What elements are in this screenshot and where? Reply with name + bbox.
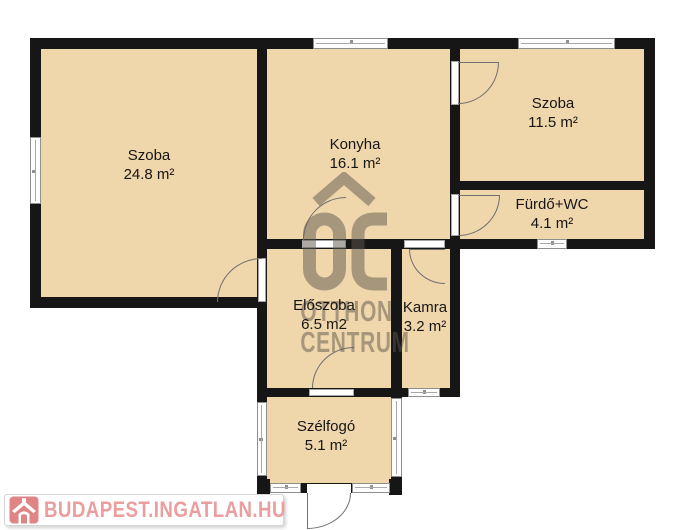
room-area: 5.1 m² — [266, 436, 386, 455]
room-label-eloszoba: Előszoba 6.5 m2 — [264, 296, 384, 334]
window-szelfogo-bottom-left — [270, 483, 301, 493]
room-label-szelfogo: Szélfogó 5.1 m² — [266, 417, 386, 455]
room-area: 24.8 m² — [89, 165, 209, 184]
room-label-kamra: Kamra 3.2 m² — [375, 298, 475, 336]
room-name: Szélfogó — [266, 417, 386, 436]
door-kamra — [404, 240, 445, 248]
room-name: Fürdő+WC — [492, 195, 612, 214]
room-area: 4.1 m² — [492, 214, 612, 233]
window-kamra-bottom — [408, 388, 440, 397]
door-entry-opening — [307, 484, 351, 493]
room-name: Szoba — [89, 146, 209, 165]
room-area: 11.5 m² — [493, 113, 613, 132]
window-konyha-top — [313, 38, 388, 49]
room-label-furdo-wc: Fürdő+WC 4.1 m² — [492, 195, 612, 233]
house-icon — [9, 496, 39, 524]
room-area: 3.2 m² — [375, 317, 475, 336]
wall-corner-block-left — [257, 479, 270, 495]
window-szelfogo-right — [391, 398, 402, 477]
room-label-szoba-nagy: Szoba 24.8 m² — [89, 146, 209, 184]
room-label-konyha: Konyha 16.1 m² — [295, 135, 415, 173]
door-eloszoba-szelfogo — [309, 389, 354, 396]
room-name: Kamra — [375, 298, 475, 317]
monogram-letter-c — [358, 219, 387, 284]
wall-szoba-furdo-divider — [450, 181, 655, 190]
ingatlan-logo: BUDAPEST.INGATLAN.HU — [4, 494, 284, 526]
roof-chevron-icon — [316, 178, 372, 202]
room-name: Előszoba — [264, 296, 384, 315]
room-area: 6.5 m2 — [264, 315, 384, 334]
floorplan-canvas: OTTHON CENTRUM Szoba 24.8 m² Konyha 16.1… — [0, 0, 690, 530]
window-furdo-bottom — [537, 239, 567, 249]
window-szelfogo-bottom-right — [352, 483, 390, 493]
room-label-szoba-kis: Szoba 11.5 m² — [493, 94, 613, 132]
otthon-centrum-watermark-icon — [283, 172, 407, 296]
room-area: 16.1 m² — [295, 154, 415, 173]
door-swing-arc-entry — [307, 493, 351, 529]
room-name: Konyha — [295, 135, 415, 154]
wall-corner-block-right — [389, 479, 402, 495]
window-szoba-kis-top — [518, 38, 615, 49]
wall-right — [644, 38, 655, 249]
ingatlan-logo-text: BUDAPEST.INGATLAN.HU — [44, 497, 286, 523]
window-szoba-left — [30, 137, 41, 204]
monogram-letter-o — [310, 219, 340, 284]
room-name: Szoba — [493, 94, 613, 113]
